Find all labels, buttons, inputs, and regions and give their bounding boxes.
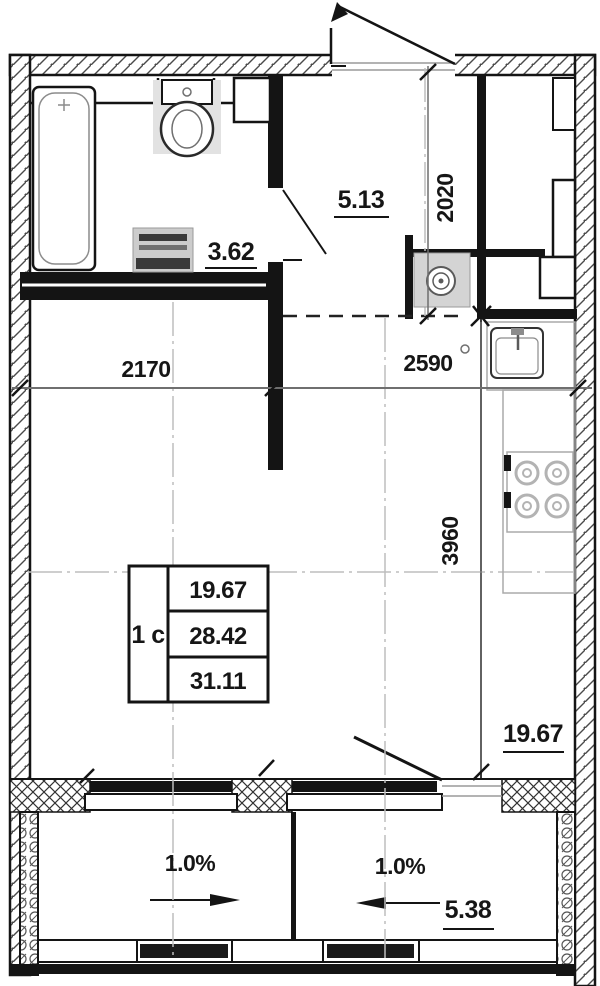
closet-south-wall (477, 309, 577, 319)
glazing-panel-2 (327, 944, 414, 958)
washer-base (136, 258, 190, 269)
dim-2020: 2020 (432, 173, 458, 222)
degree-mark-icon (461, 345, 469, 353)
dim-2590: 2590 (403, 350, 452, 376)
window-2-sill (287, 794, 442, 810)
arrow-left-icon (356, 897, 386, 909)
arrow-right-icon (210, 894, 240, 906)
slope-left-label: 1.0% (165, 850, 215, 876)
dim-ticks (12, 64, 586, 783)
pier-right (502, 779, 575, 812)
slope-arrow-right (356, 897, 440, 909)
dim-3960: 3960 (437, 516, 463, 565)
balcony (10, 812, 575, 975)
right-wall (575, 55, 595, 986)
area-table: 1 с 19.67 28.42 31.11 (129, 566, 268, 702)
stove-tab-2 (504, 492, 511, 508)
water-heater (414, 253, 470, 307)
washer-slot-2 (139, 245, 187, 250)
entry-door-arrow-icon (331, 2, 348, 22)
table-total-area: 31.11 (190, 668, 246, 695)
bathroom-shaft (234, 78, 270, 122)
balcony-area-label: 5.38 (445, 896, 492, 924)
balcony-glazing (38, 940, 557, 962)
table-living-area: 19.67 (189, 577, 247, 604)
bathroom-area-label: 3.62 (208, 238, 255, 266)
table-area-without-balcony: 28.42 (189, 623, 247, 650)
window-1-sill (85, 794, 237, 810)
vent-shaft-lower (540, 257, 575, 298)
bathroom-right-wall-lower (268, 262, 283, 470)
balcony-wall (10, 737, 575, 812)
dim-2170: 2170 (121, 356, 170, 382)
vent-shaft-upper (553, 180, 575, 257)
bathtub (33, 87, 95, 270)
floor-plan-svg: 1 с 19.67 28.42 31.11 3.62 5.13 19.67 5.… (0, 0, 600, 986)
kitchen-living-area-label: 19.67 (503, 720, 563, 748)
glazing-panel-1 (140, 944, 228, 958)
washer-slot-1 (139, 234, 187, 241)
interior-walls (20, 75, 577, 470)
window-1 (90, 781, 232, 792)
bathroom-door-leaf (283, 190, 326, 254)
window-2 (292, 781, 437, 792)
washing-machine (133, 228, 193, 272)
bathroom-door (283, 190, 326, 260)
dimension-lines (12, 64, 592, 783)
balcony-outer-edge (10, 964, 575, 974)
floor-plan: 1 с 19.67 28.42 31.11 3.62 5.13 19.67 5.… (0, 0, 600, 986)
kitchen-counter (503, 390, 575, 593)
slope-arrow-left (150, 894, 240, 906)
balcony-left-insulation (20, 812, 38, 975)
hall-closet-divider-wall (477, 75, 486, 316)
balcony-divider (291, 812, 296, 942)
slope-right-label: 1.0% (375, 853, 425, 879)
hallway-area-label: 5.13 (338, 186, 385, 214)
stove-tab-1 (504, 455, 511, 471)
faucet-icon (511, 328, 524, 335)
pier-middle (232, 779, 292, 812)
balcony-right-insulation (557, 812, 575, 975)
top-wall (10, 55, 595, 75)
centerlines (28, 68, 573, 958)
balcony-door-leaf (354, 737, 442, 780)
apartment-type-label: 1 с (131, 621, 165, 649)
right-wall-niche (553, 78, 575, 130)
toilet-tank (162, 80, 212, 104)
kitchen-sink (487, 322, 575, 390)
toilet (153, 80, 221, 156)
boiler-left-wall (405, 235, 413, 319)
pier-left (10, 779, 90, 812)
